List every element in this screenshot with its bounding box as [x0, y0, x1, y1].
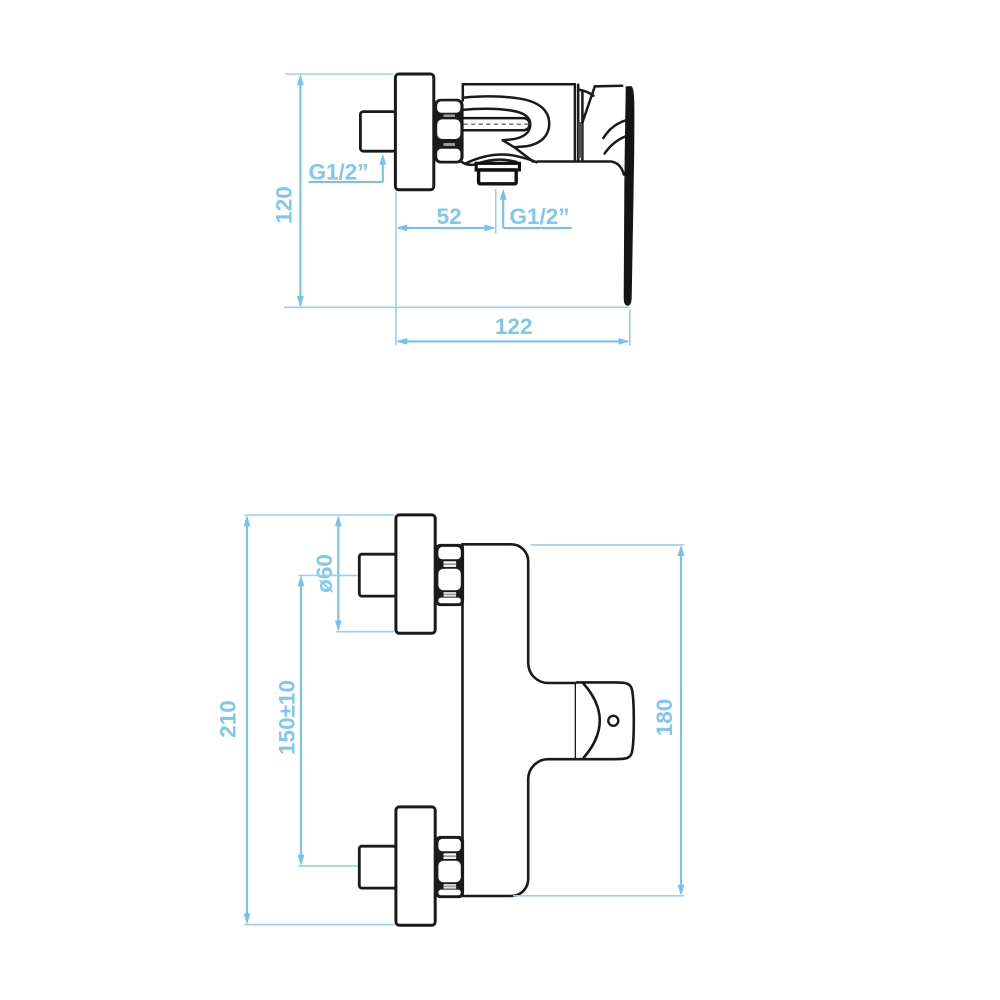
- svg-text:180: 180: [652, 699, 677, 737]
- svg-text:ø60: ø60: [312, 554, 337, 593]
- svg-text:210: 210: [216, 700, 241, 738]
- svg-text:120: 120: [272, 186, 297, 224]
- svg-text:G1/2”: G1/2”: [510, 204, 570, 229]
- svg-text:52: 52: [437, 204, 462, 229]
- svg-text:150±10: 150±10: [275, 680, 300, 755]
- svg-text:G1/2”: G1/2”: [309, 160, 369, 185]
- svg-text:122: 122: [495, 314, 533, 339]
